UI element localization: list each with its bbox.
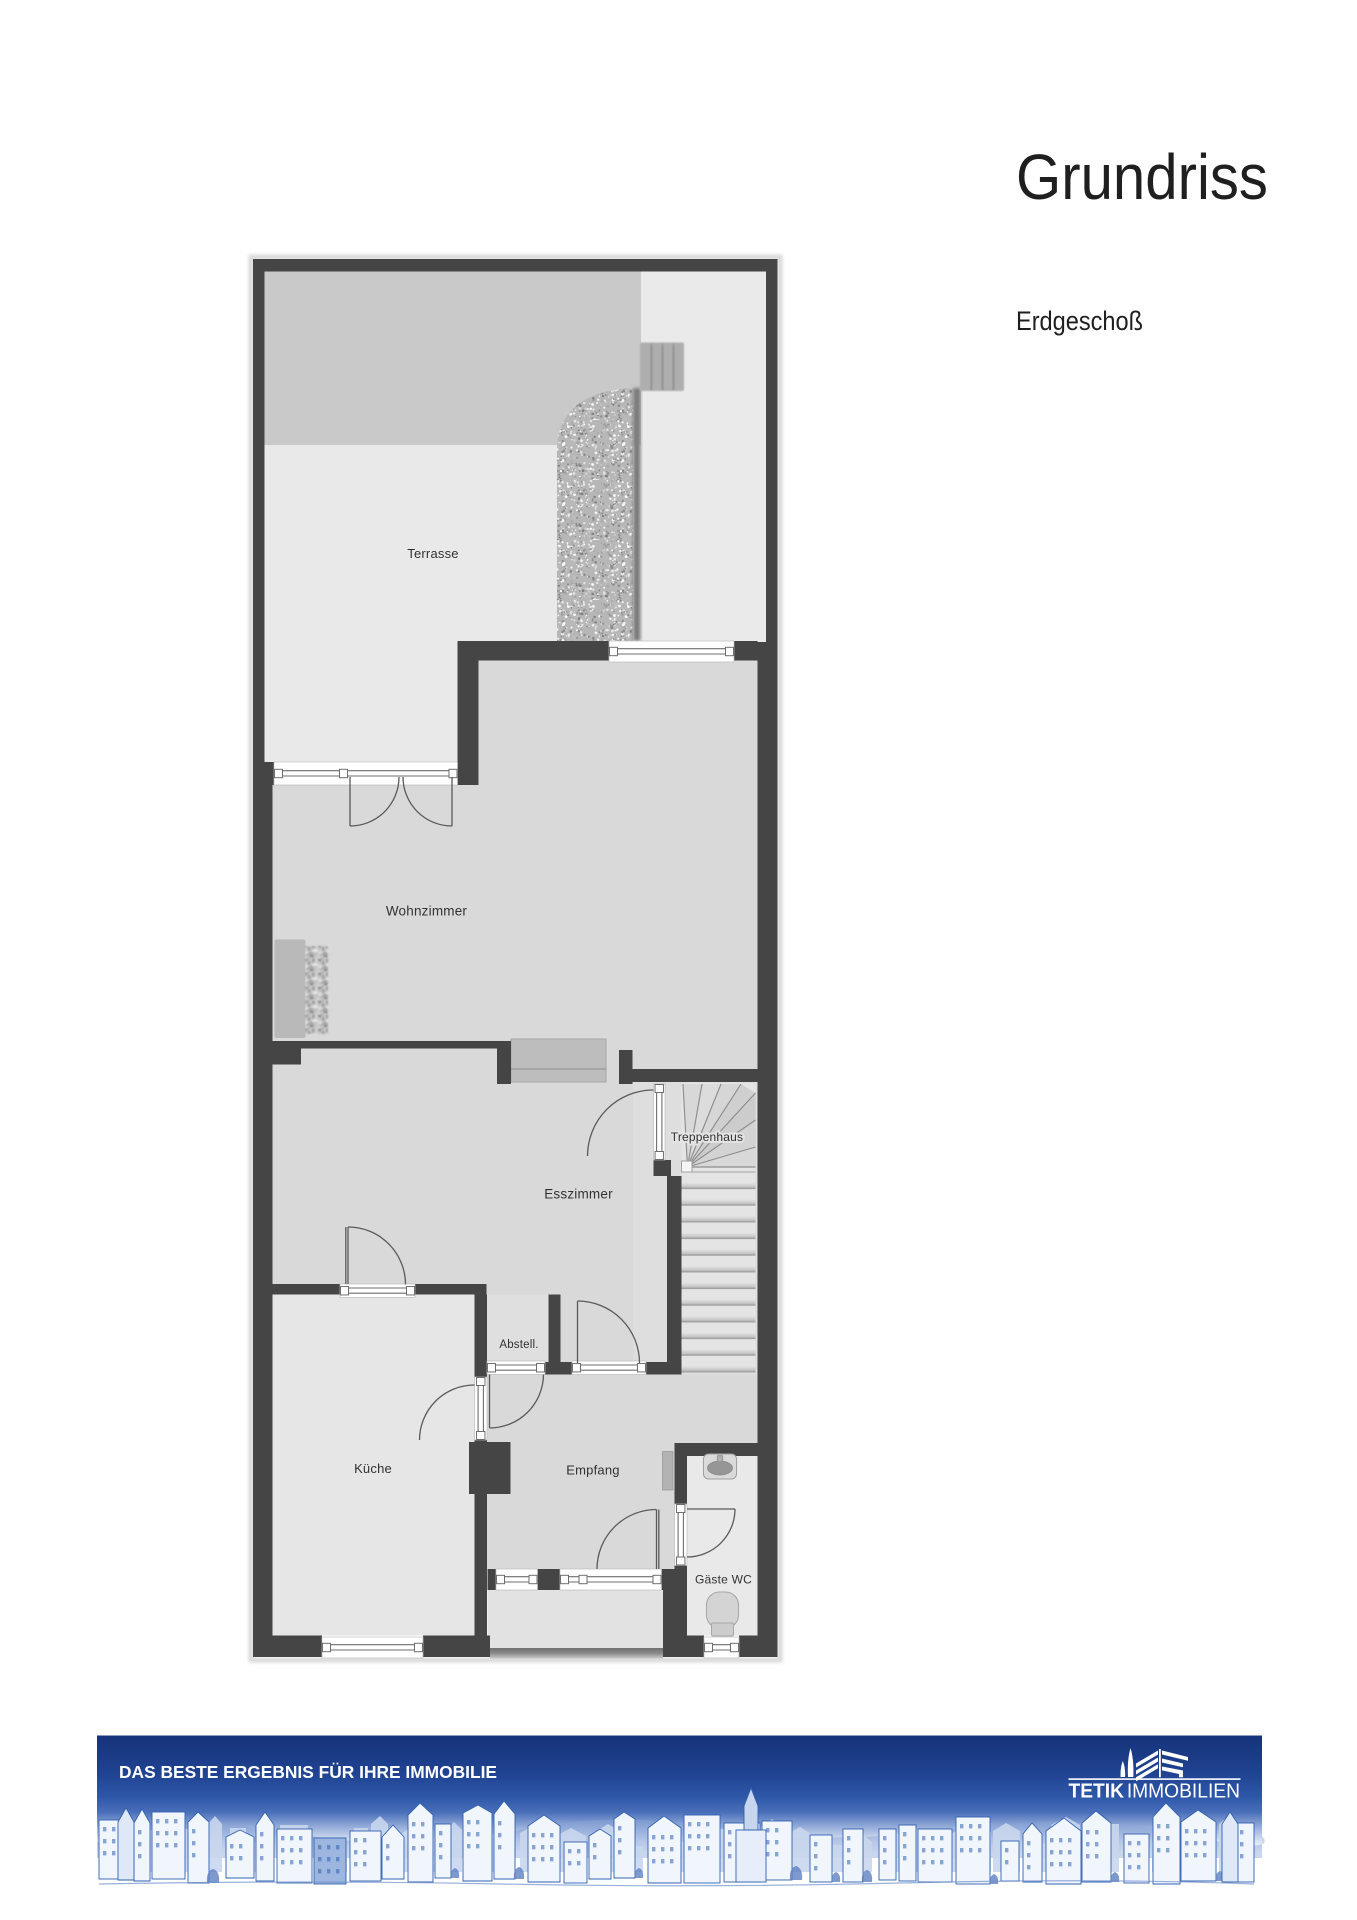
svg-text:Küche: Küche — [354, 1461, 392, 1476]
svg-text:DAS BESTE ERGEBNIS FÜR IHRE IM: DAS BESTE ERGEBNIS FÜR IHRE IMMOBILIE — [119, 1762, 497, 1782]
svg-text:Esszimmer: Esszimmer — [544, 1187, 613, 1202]
svg-text:Empfang: Empfang — [566, 1463, 619, 1478]
svg-text:Erdgeschoß: Erdgeschoß — [1016, 306, 1143, 336]
svg-text:Terrasse: Terrasse — [407, 546, 458, 561]
svg-text:Grundriss: Grundriss — [1016, 141, 1268, 213]
svg-text:Treppenhaus: Treppenhaus — [671, 1130, 743, 1144]
svg-text:Abstell.: Abstell. — [499, 1339, 538, 1351]
svg-text:Wohnzimmer: Wohnzimmer — [386, 904, 468, 919]
svg-text:TETIKIMMOBILIEN: TETIKIMMOBILIEN — [1069, 1780, 1241, 1803]
svg-text:Gäste WC: Gäste WC — [695, 1573, 752, 1587]
